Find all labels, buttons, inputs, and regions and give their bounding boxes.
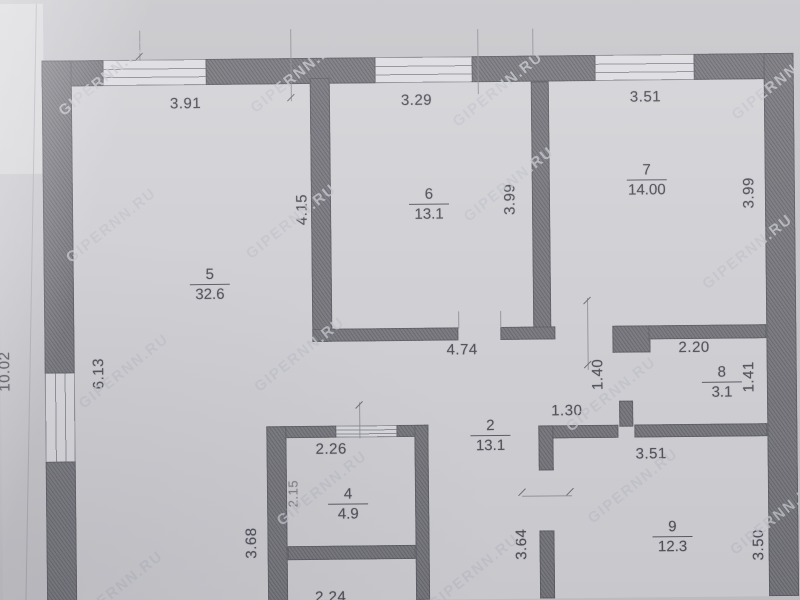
wall-segment [41, 60, 74, 373]
room-number: 4 [328, 485, 368, 504]
room-number: 9 [652, 518, 692, 537]
wall-segment [619, 401, 633, 427]
room-label-4: 4 4.9 [315, 485, 381, 523]
dimension-label: 3.51 [636, 445, 667, 462]
dimension-label: 2.24 [315, 589, 346, 600]
room-area: 13.1 [396, 205, 462, 223]
wall-segment [539, 530, 555, 598]
window [375, 56, 471, 83]
room-label-6: 6 13.1 [396, 185, 462, 223]
room-label-7: 7 14.00 [614, 161, 680, 199]
dimension-label-vertical: 10.02 [0, 344, 14, 400]
room-number: 2 [470, 417, 510, 436]
room-area: 12.3 [640, 538, 706, 556]
dimension-label-vertical: 6.13 [90, 346, 108, 402]
room-area: 14.00 [614, 181, 680, 199]
wall-segment [531, 81, 552, 338]
window [45, 373, 76, 461]
dimension-label: 3.91 [170, 95, 201, 112]
dimension-label: 4.74 [446, 341, 477, 358]
floorplan: 5 32.6 6 13.1 7 14.00 2 13.1 8 3.1 4 4.9… [0, 0, 800, 600]
window [336, 425, 396, 438]
room-label-9: 9 12.3 [639, 518, 705, 556]
wall-segment [312, 327, 458, 342]
dimension-label-vertical: 3.99 [501, 171, 519, 227]
room-area: 32.6 [177, 286, 243, 304]
extension-line [500, 311, 501, 328]
room-label-5: 5 32.6 [177, 266, 243, 304]
extension-line [532, 29, 533, 57]
room-area: 13.1 [458, 437, 522, 455]
dimension-label-vertical: 3.68 [243, 515, 261, 571]
wall-segment [310, 78, 333, 342]
wall-segment [471, 55, 595, 82]
dimension-label: 2.26 [315, 441, 346, 458]
wall-segment [414, 425, 430, 600]
dimension-label-vertical: 1.40 [589, 346, 607, 402]
wall-segment [538, 425, 553, 470]
wall-segment [634, 423, 767, 437]
dimension-label: 1.30 [551, 402, 582, 419]
room-area: 4.9 [315, 505, 381, 523]
wall-segment [648, 324, 766, 339]
room-number: 7 [627, 161, 667, 180]
wall-segment [288, 545, 416, 560]
room-number: 6 [409, 185, 449, 204]
window [103, 59, 205, 86]
dimension-label-vertical: 3.64 [513, 516, 531, 572]
dimension-label-vertical: 3.50 [750, 517, 768, 573]
dimension-label-vertical: 1.41 [740, 349, 758, 405]
dimension-label-vertical: 4.15 [293, 181, 311, 237]
wall-segment [763, 53, 799, 596]
dimension-label-vertical: 3.99 [740, 165, 758, 221]
dimension-label: 3.29 [401, 92, 432, 109]
scanned-floorplan-page: 5 32.6 6 13.1 7 14.00 2 13.1 8 3.1 4 4.9… [0, 0, 800, 600]
room-number: 8 [702, 363, 742, 382]
dimension-label: 2.20 [678, 339, 709, 356]
paper-corner-highlight [0, 4, 45, 174]
wall-segment [46, 461, 77, 600]
room-number: 5 [190, 266, 230, 285]
dimension-label: 3.51 [630, 88, 661, 105]
extension-line [458, 311, 459, 328]
room-label-2: 2 13.1 [458, 417, 522, 455]
window [595, 54, 693, 81]
wall-segment [612, 325, 650, 352]
dimension-label-vertical: 2.15 [285, 466, 301, 522]
wall-segment [500, 326, 555, 340]
